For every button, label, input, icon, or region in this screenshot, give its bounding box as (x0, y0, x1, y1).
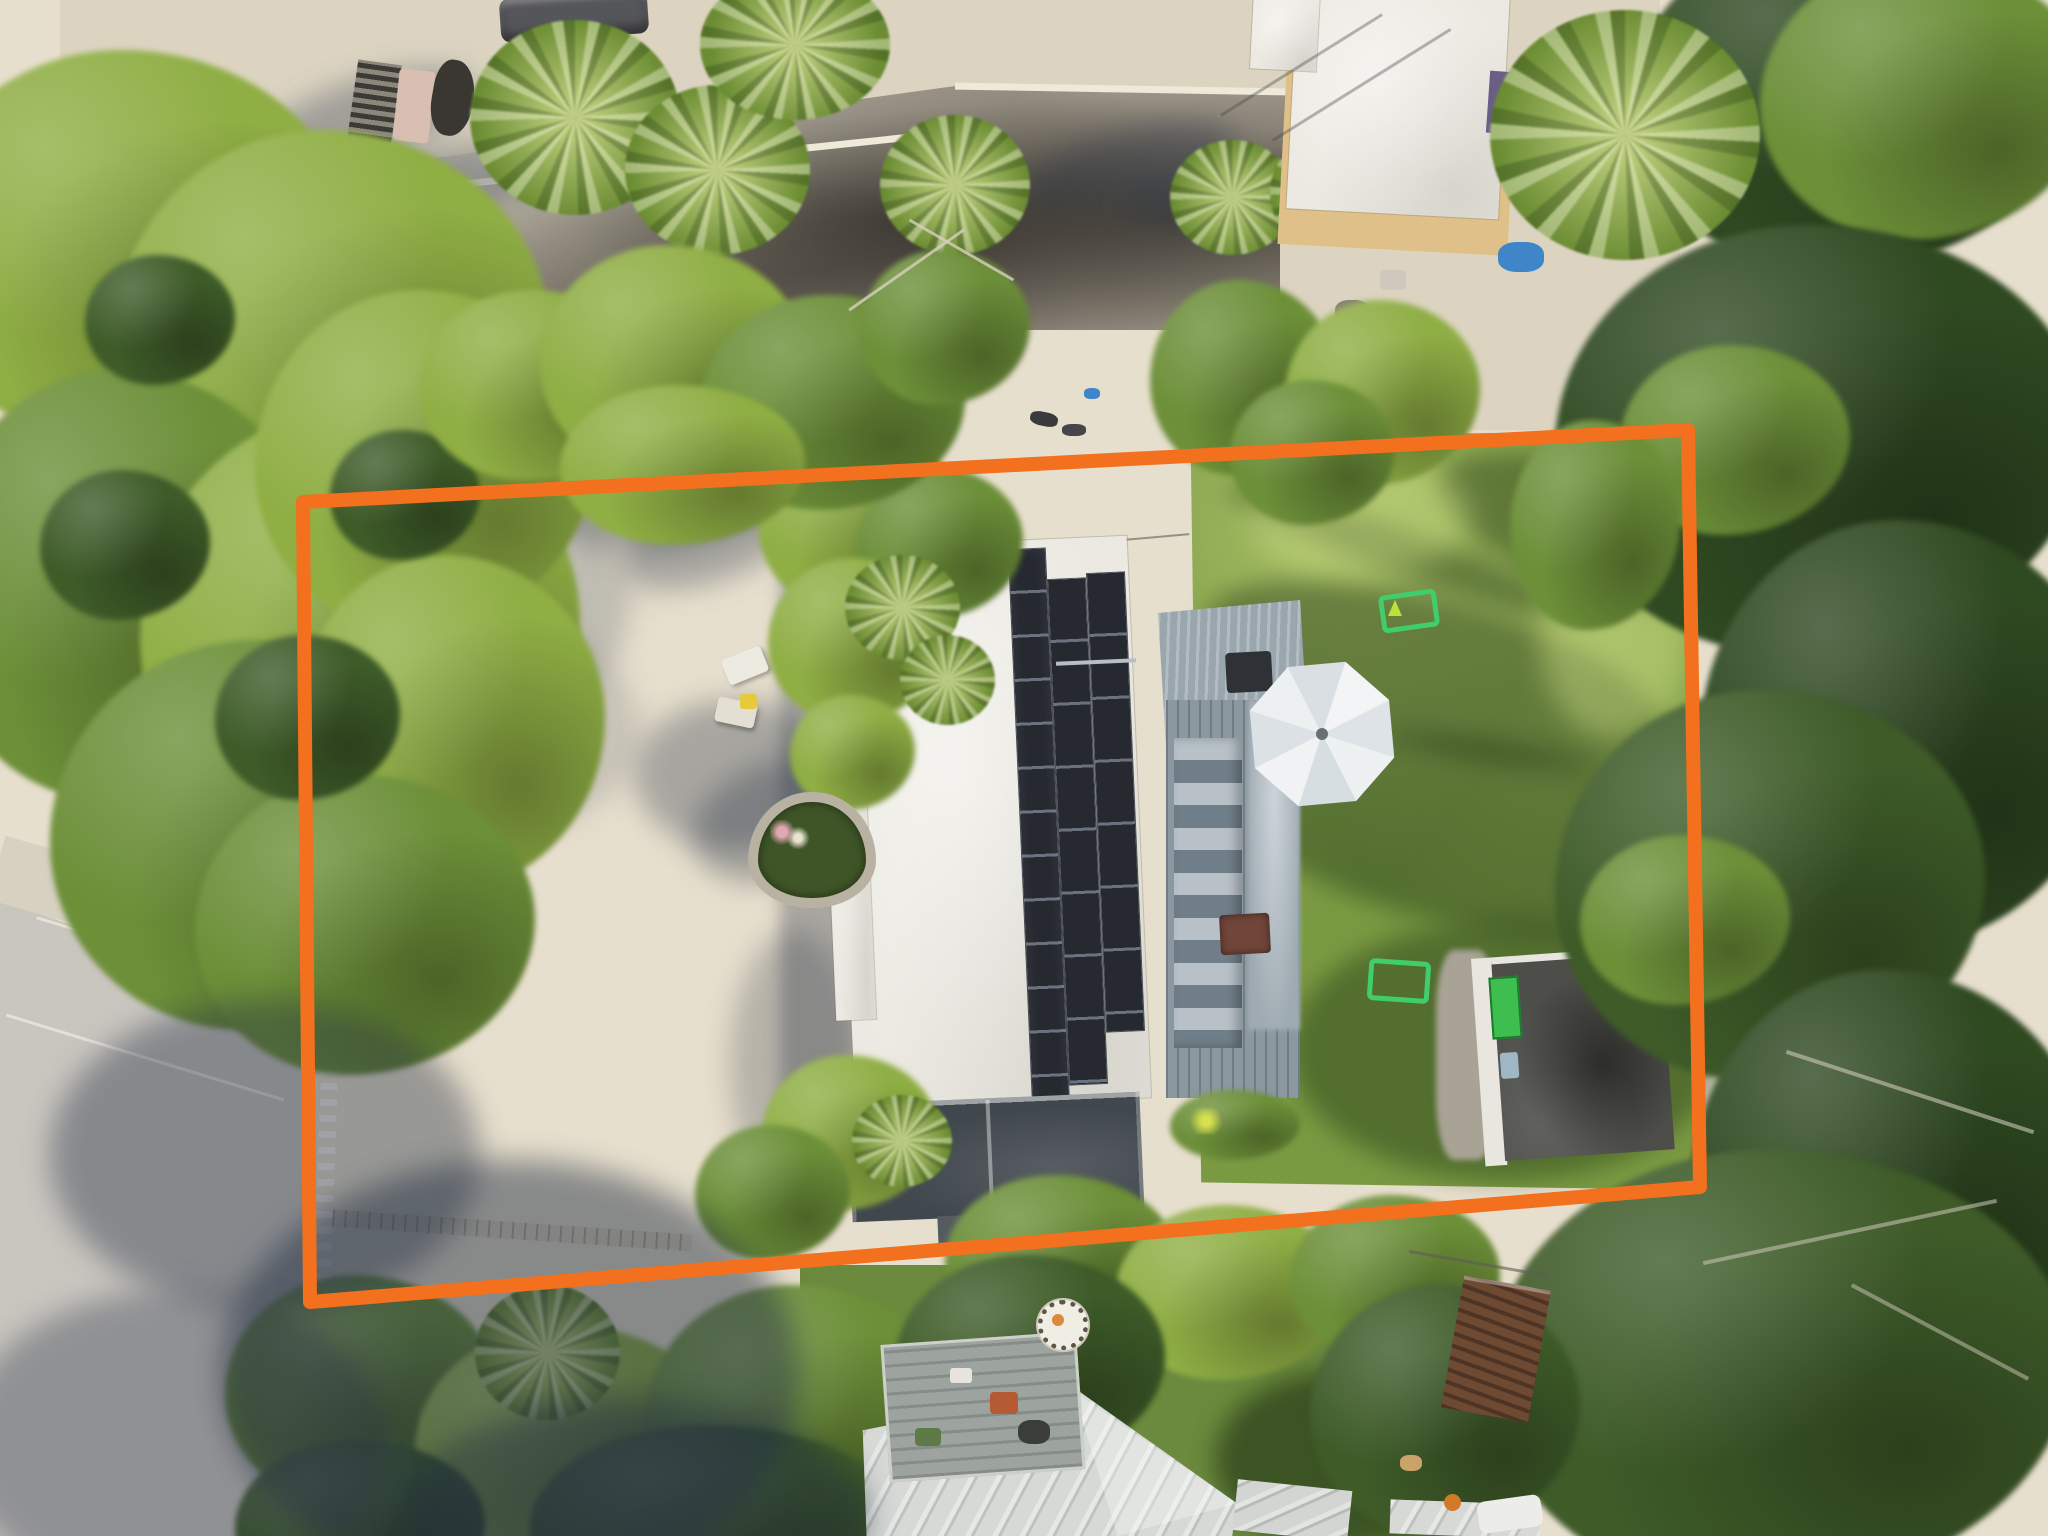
bottom-house-deck (880, 1331, 1085, 1482)
yard-chair (1380, 270, 1406, 290)
yellow-flowers (1186, 1108, 1226, 1134)
palm-starburst (900, 635, 995, 725)
soccer-goal-bottom (1367, 958, 1432, 1004)
planter-box (1219, 913, 1271, 956)
shed-green-panel (1488, 976, 1522, 1040)
aerial-photo (0, 0, 2048, 1536)
deck-clutter (915, 1428, 941, 1446)
ornament-center (1052, 1314, 1064, 1326)
deck-stairs (1174, 738, 1242, 1048)
deck-clutter (1018, 1420, 1050, 1444)
umbrella-center (1316, 728, 1328, 740)
big-palm-top-right (1490, 10, 1760, 260)
tan-item (1400, 1455, 1422, 1471)
garden-flowers (770, 820, 810, 850)
deck-clutter (950, 1368, 972, 1383)
round-garden-ornament (1038, 1300, 1088, 1350)
grill (1225, 651, 1273, 693)
deck-clutter (990, 1392, 1018, 1414)
shed-window (1500, 1052, 1520, 1079)
soccer-goal-top (1378, 588, 1441, 634)
pink-table (392, 68, 435, 143)
palm-starburst (852, 1095, 952, 1187)
blue-tarp (1498, 242, 1544, 272)
orange-item (1444, 1494, 1461, 1511)
bike-cluster (1062, 424, 1086, 436)
blue-item (1084, 388, 1100, 399)
yellow-cooler (740, 694, 757, 709)
